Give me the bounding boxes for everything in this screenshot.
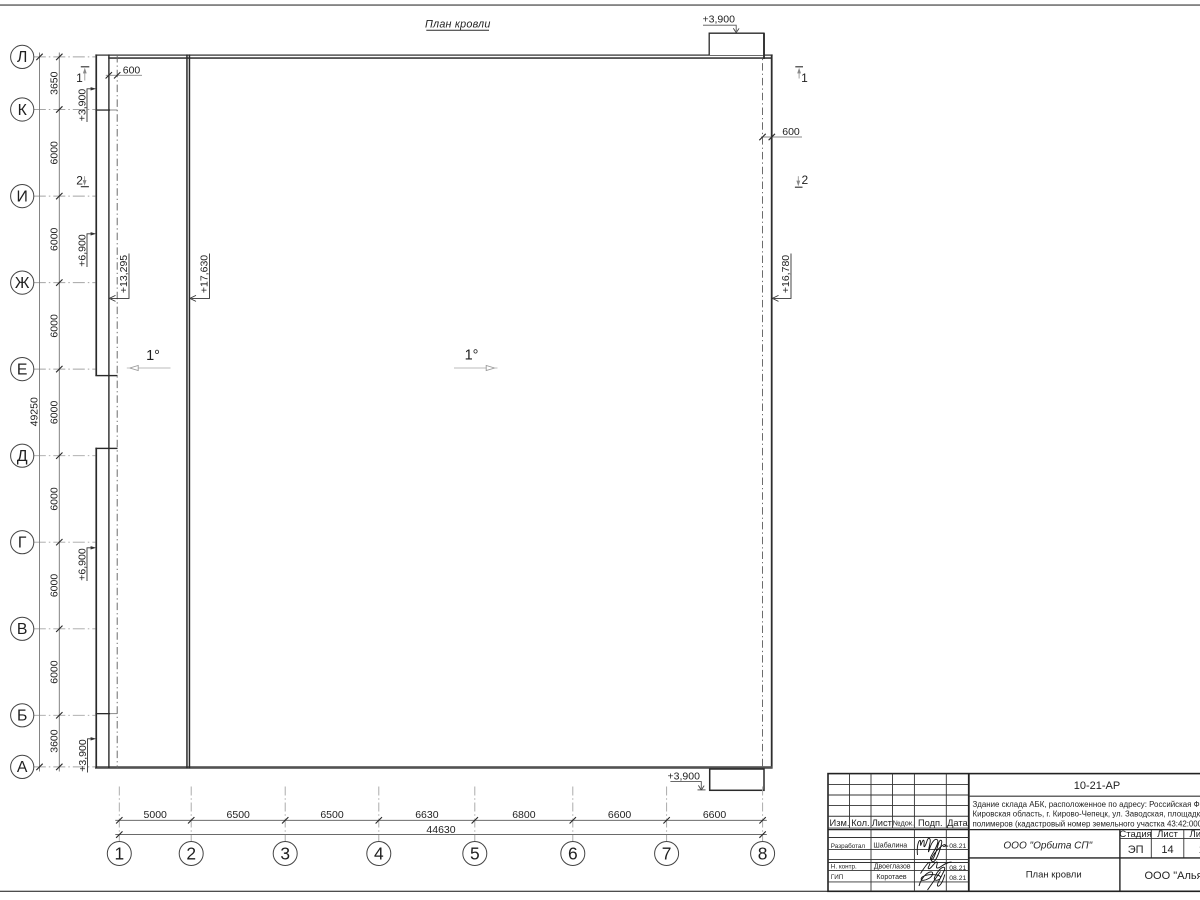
svg-text:6630: 6630	[415, 809, 439, 821]
svg-text:3650: 3650	[48, 71, 60, 95]
svg-text:Г: Г	[18, 535, 27, 552]
svg-text:4: 4	[374, 844, 384, 864]
svg-text:08.21: 08.21	[949, 843, 966, 850]
svg-text:полимеров (кадастровый номер з: полимеров (кадастровый номер земельного …	[973, 819, 1200, 828]
svg-text:+6,900: +6,900	[76, 234, 88, 267]
svg-text:08.21: 08.21	[949, 865, 966, 872]
svg-text:Подп.: Подп.	[918, 818, 943, 828]
svg-text:Е: Е	[17, 361, 28, 378]
svg-text:8: 8	[758, 844, 768, 864]
svg-text:5000: 5000	[144, 809, 168, 821]
svg-text:+13,295: +13,295	[118, 255, 130, 293]
svg-text:+17,630: +17,630	[198, 255, 210, 293]
svg-text:49250: 49250	[29, 397, 41, 426]
svg-text:Н. контр.: Н. контр.	[831, 863, 857, 870]
svg-text:К: К	[18, 102, 28, 119]
svg-text:Кол.: Кол.	[851, 818, 869, 828]
svg-text:6000: 6000	[48, 141, 60, 165]
svg-text:3600: 3600	[48, 729, 60, 753]
svg-text:600: 600	[123, 64, 141, 76]
svg-text:+16,780: +16,780	[780, 255, 792, 293]
svg-text:+3,900: +3,900	[77, 739, 89, 772]
svg-text:В: В	[17, 621, 28, 638]
svg-text:Дата: Дата	[947, 818, 968, 828]
svg-text:6000: 6000	[48, 660, 60, 684]
svg-text:6600: 6600	[608, 809, 632, 821]
svg-text:6500: 6500	[320, 809, 344, 821]
svg-text:+3,900: +3,900	[668, 771, 701, 783]
svg-text:Коротаев: Коротаев	[876, 874, 907, 881]
svg-text:14: 14	[1161, 844, 1173, 856]
svg-text:Стадия: Стадия	[1119, 829, 1151, 840]
svg-text:6000: 6000	[48, 487, 60, 511]
svg-text:№док.: №док.	[893, 818, 914, 827]
svg-text:+3,900: +3,900	[703, 14, 736, 26]
svg-text:2: 2	[186, 844, 196, 864]
svg-text:1: 1	[114, 844, 124, 864]
svg-text:6800: 6800	[512, 809, 536, 821]
svg-text:Д: Д	[17, 448, 28, 465]
svg-text:ООО "Орбита СП": ООО "Орбита СП"	[1003, 839, 1092, 851]
svg-text:6000: 6000	[48, 314, 60, 338]
svg-text:Б: Б	[17, 708, 27, 725]
svg-text:И: И	[17, 188, 28, 205]
svg-text:Л: Л	[17, 49, 27, 66]
svg-text:44630: 44630	[426, 824, 455, 836]
svg-text:ЭП: ЭП	[1128, 844, 1144, 856]
svg-text:2: 2	[801, 173, 808, 187]
svg-text:Листов: Листов	[1189, 829, 1200, 840]
svg-text:План кровли: План кровли	[1026, 870, 1082, 881]
svg-text:6600: 6600	[703, 809, 727, 821]
svg-text:Шабалина: Шабалина	[873, 842, 907, 850]
svg-text:1: 1	[76, 71, 83, 85]
svg-text:6000: 6000	[48, 574, 60, 598]
svg-text:Лист: Лист	[1157, 829, 1178, 840]
svg-text:1°: 1°	[146, 348, 160, 364]
svg-text:1: 1	[801, 71, 808, 85]
svg-text:7: 7	[662, 844, 672, 864]
svg-text:10-21-АР: 10-21-АР	[1074, 780, 1120, 792]
svg-text:5: 5	[470, 844, 480, 864]
svg-text:Лист: Лист	[872, 818, 893, 828]
svg-text:Кировская область, г. Кирово-Ч: Кировская область, г. Кирово-Чепецк, ул.…	[973, 810, 1200, 819]
svg-text:Ж: Ж	[15, 275, 30, 292]
svg-text:ГИП: ГИП	[831, 874, 844, 881]
svg-text:План кровли: План кровли	[425, 18, 491, 30]
svg-text:2: 2	[76, 174, 83, 188]
svg-text:Разработал: Разработал	[831, 842, 866, 850]
svg-text:6: 6	[568, 844, 578, 864]
svg-text:08.21: 08.21	[949, 875, 966, 882]
svg-text:600: 600	[782, 126, 800, 138]
svg-text:Двоеглазов: Двоеглазов	[874, 863, 911, 870]
svg-text:6000: 6000	[48, 401, 60, 425]
svg-text:+3,900: +3,900	[76, 89, 88, 122]
svg-text:6500: 6500	[227, 809, 251, 821]
svg-text:+6,900: +6,900	[76, 548, 88, 581]
svg-text:3: 3	[280, 844, 290, 864]
svg-text:6000: 6000	[48, 227, 60, 251]
svg-text:Здание склада АБК, расположенн: Здание склада АБК, расположенное по адре…	[973, 800, 1200, 809]
svg-text:А: А	[17, 759, 28, 776]
svg-text:1°: 1°	[465, 348, 479, 364]
svg-text:Изм.: Изм.	[830, 818, 850, 828]
svg-text:ООО "Альянс-Проект": ООО "Альянс-Проект"	[1145, 870, 1200, 882]
